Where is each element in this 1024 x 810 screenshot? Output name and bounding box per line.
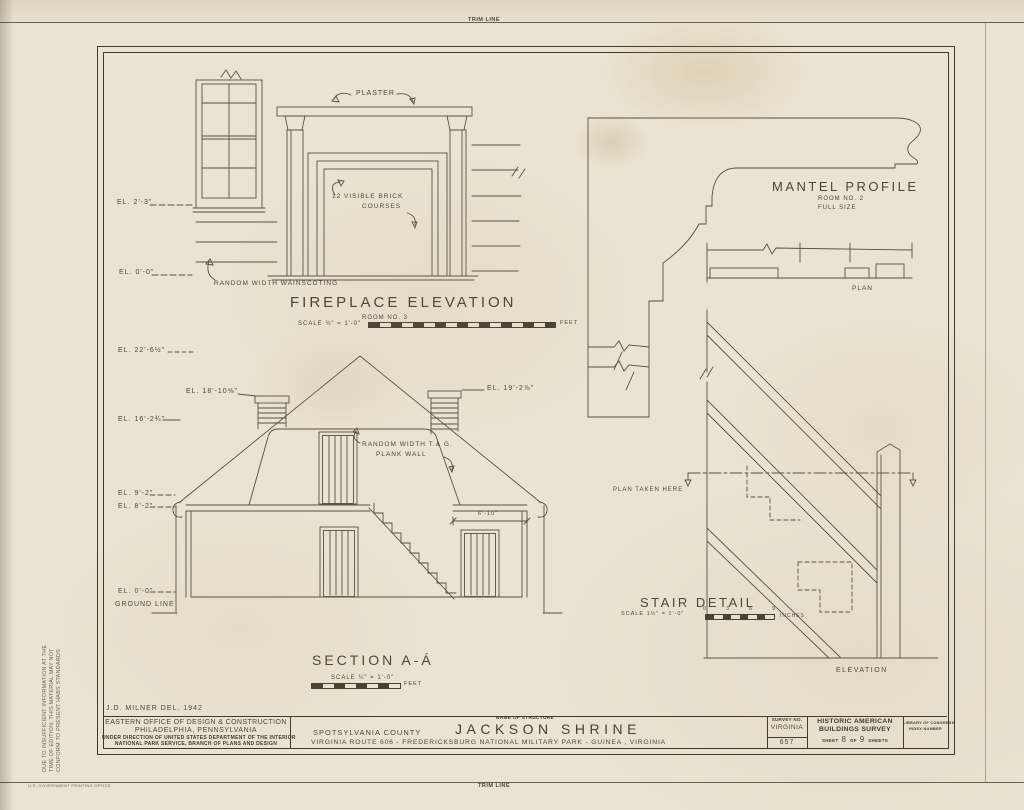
plan-taken-here-label: PLAN TAKEN HERE — [613, 487, 683, 493]
wainscoting-label: RANDOM WIDTH WAINSCOTING — [214, 281, 338, 288]
mantel-title: MANTEL PROFILE — [772, 180, 918, 193]
fireplace-scale-label: SCALE ¾" = 1'-0" — [298, 321, 361, 327]
section-el-floor: EL. 0'-0" — [118, 588, 153, 595]
fireplace-el-bottom: EL. 0'-0" — [119, 269, 154, 276]
trim-line-top — [0, 22, 1024, 23]
titleblock-divider-1 — [290, 716, 291, 748]
trim-line-right — [985, 22, 986, 782]
fireplace-scale-unit: FEET — [560, 321, 578, 327]
sheet-number-row: SHEET 8 OF 9 SHEETS — [807, 736, 903, 744]
margin-note-line3: CONFORM TO PRESENT HABS STANDARDS — [56, 550, 63, 772]
section-drawing — [108, 340, 570, 630]
of-word: OF — [850, 739, 857, 744]
plaster-label: PLASTER — [356, 90, 395, 97]
structure-name: JACKSON SHRINE — [455, 722, 641, 736]
sheet-number: 8 — [841, 736, 846, 744]
brick-courses-label-line1: 12 VISIBLE BRICK — [332, 194, 403, 201]
stair-scale-unit: INCHES — [780, 614, 805, 619]
survey-no-caption: SURVEY NO. — [767, 718, 807, 723]
habs-line2: BUILDINGS SURVEY — [807, 727, 903, 734]
plank-wall-label-line1: RANDOM WIDTH T.& G. — [362, 442, 453, 449]
office-line1: EASTERN OFFICE OF DESIGN & CONSTRUCTION — [102, 719, 290, 726]
county-label: SPOTSYLVANIA COUNTY — [313, 729, 421, 737]
brick-courses-label-line2: COURSES — [362, 204, 401, 211]
section-el-chimney-left: EL. 18'-10⅝" — [186, 388, 238, 395]
habs-line1: HISTORIC AMERICAN — [807, 719, 903, 726]
fireplace-elevation-drawing — [110, 68, 570, 308]
stair-scale-label: SCALE 1½" = 1'-0" — [621, 612, 684, 618]
structure-location: VIRGINIA ROUTE 606 - FREDERICKSBURG NATI… — [311, 740, 666, 747]
section-scale-label: SCALE ¼" = 1'-0" — [331, 675, 394, 681]
fireplace-el-top: EL. 2'-3" — [117, 199, 152, 206]
stair-tick-6: 6 — [749, 607, 752, 612]
section-scale-unit: FEET — [404, 682, 422, 688]
section-el-attic: EL. 16'-2¾" — [118, 416, 165, 423]
loc-line2: INDEX NUMBER — [903, 728, 948, 732]
stair-tick-0: 0 — [703, 607, 706, 612]
stair-scale-bar — [705, 614, 775, 620]
survey-box-rule — [767, 737, 807, 738]
delineator-credit: J.D. MILNER DEL. 1942 — [106, 705, 203, 712]
trim-line-top-label: TRIM LINE — [468, 18, 500, 24]
stair-tick-3: 3 — [726, 607, 729, 612]
mantel-size-label: FULL SIZE — [818, 205, 856, 211]
survey-number: 657 — [767, 739, 807, 746]
loc-line1: LIBRARY OF CONGRESS — [903, 722, 948, 726]
closet-dimension: 6'-10" — [478, 512, 498, 518]
section-title: SECTION A-Á — [312, 653, 434, 667]
printer-mark: U.S. GOVERNMENT PRINTING OFFICE — [28, 784, 111, 788]
habs-drawing-sheet: TRIM LINE TRIM LINE U.S. GOVERNMENT PRIN… — [0, 0, 1024, 810]
sheets-word: SHEETS — [868, 739, 888, 744]
section-el-chimney-right: EL. 19'-2⅞" — [487, 385, 534, 392]
trim-line-bottom-label: TRIM LINE — [478, 784, 510, 790]
margin-note: DUE TO INSUFFICIENT INFORMATION AT THE T… — [42, 550, 63, 772]
fireplace-scale-bar — [368, 322, 556, 328]
margin-note-line2: TIME OF EDITION, THIS MATERIAL MAY NOT — [49, 550, 56, 772]
office-line4: NATIONAL PARK SERVICE, BRANCH OF PLANS A… — [102, 742, 290, 747]
section-scale-bar — [311, 683, 401, 689]
stair-elevation-label: ELEVATION — [836, 667, 888, 674]
mantel-room-label: ROOM NO. 2 — [818, 196, 864, 202]
trim-line-bottom — [0, 782, 1024, 783]
section-el-ceiling: EL. 9'-2" — [118, 490, 153, 497]
stair-tick-9: 9 — [772, 607, 775, 612]
section-el-plate: EL. 8'-2" — [118, 503, 153, 510]
sheet-word: SHEET — [822, 739, 839, 744]
ground-line-label: GROUND LINE — [115, 601, 175, 608]
plank-wall-label-line2: PLANK WALL — [376, 452, 427, 459]
section-el-ridge: EL. 22'-6½" — [118, 347, 165, 354]
stair-scale-ticks: 0 3 6 9 — [703, 607, 775, 612]
sheet-total: 9 — [860, 736, 865, 744]
mantel-plan-label: PLAN — [852, 286, 873, 293]
survey-state: VIRGINIA — [767, 725, 807, 732]
office-line2: PHILADELPHIA, PENNSYLVANIA — [102, 727, 290, 734]
fireplace-room-label: ROOM NO. 3 — [362, 315, 408, 321]
margin-note-line1: DUE TO INSUFFICIENT INFORMATION AT THE — [42, 550, 49, 772]
fireplace-title: FIREPLACE ELEVATION — [290, 295, 517, 310]
stair-detail-drawing — [585, 300, 952, 700]
